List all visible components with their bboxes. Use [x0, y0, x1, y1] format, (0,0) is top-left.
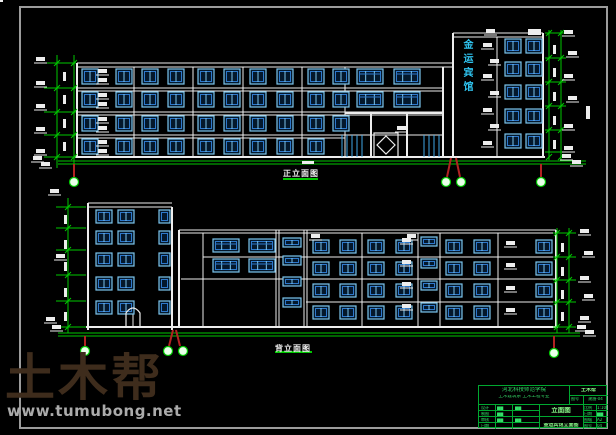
- window: [159, 301, 170, 314]
- level-mark-text: [98, 126, 107, 130]
- dim-text: [561, 243, 564, 252]
- tb-line: [569, 395, 608, 396]
- level-mark-text: [397, 126, 406, 130]
- level-mark-text: [490, 124, 499, 128]
- dim-text: [553, 92, 556, 101]
- level-mark-text: [584, 294, 593, 298]
- tb-drawing-name: 立面图: [540, 407, 582, 414]
- tb-row-value: ▆▆: [497, 418, 511, 422]
- dim-text: [64, 215, 67, 224]
- tb-brand: 土木帮: [570, 388, 607, 394]
- tb-department: 土木建筑系 土木工程专业: [481, 395, 567, 400]
- watermark-brand-text: 土木帮: [5, 353, 164, 403]
- level-mark-text: [490, 91, 499, 95]
- tb-school: 河北科技师范学院: [481, 387, 567, 393]
- level-mark-text: [402, 282, 411, 286]
- axis-bubble: [442, 178, 451, 187]
- dim-text: [553, 45, 556, 54]
- level-mark-text: [56, 254, 65, 258]
- tb-right-value: ▆▆: [597, 412, 607, 416]
- level-mark-text: [36, 81, 45, 85]
- axis-bubble: [164, 347, 173, 356]
- tb-right-label: 图号: [584, 424, 595, 428]
- level-mark-text: [580, 276, 589, 280]
- tb-row-value: ▆▆: [497, 406, 511, 410]
- level-mark-text: [46, 317, 55, 321]
- axis-bubble: [550, 349, 559, 358]
- tb-docno-value: 建施-04: [584, 397, 607, 401]
- dim-text: [64, 288, 67, 297]
- tb-right-label: 图幅: [584, 418, 595, 422]
- level-mark-text: [483, 108, 492, 112]
- tb-row-label: 制图: [481, 412, 494, 416]
- level-mark-text: [577, 325, 586, 329]
- level-mark-text: [564, 30, 573, 34]
- level-mark-text: [98, 140, 107, 144]
- tb-line: [495, 404, 496, 429]
- door-detail: [377, 136, 395, 154]
- cad-screenshot: 金运宾馆 正立面图 背立面图 河北科技师范学院 土木建筑系 土木工程专业 土木帮…: [0, 0, 616, 435]
- cad-line: [176, 330, 180, 346]
- tb-row-label: 审核: [481, 418, 494, 422]
- dim-text: [553, 140, 556, 149]
- level-mark-text: [483, 141, 492, 145]
- dim-text: [63, 119, 66, 128]
- level-mark-text: [407, 234, 416, 238]
- dim-text: [63, 142, 66, 151]
- level-mark-text: [490, 59, 499, 63]
- tb-right-value: A2: [597, 418, 607, 422]
- tb-docno-label: 图号: [571, 397, 583, 401]
- level-mark-text: [506, 286, 515, 290]
- window: [213, 259, 239, 272]
- axis-bubble: [457, 178, 466, 187]
- window: [159, 253, 170, 266]
- level-mark-text: [584, 251, 593, 255]
- dim-text: [302, 161, 314, 164]
- level-mark-text: [585, 330, 594, 334]
- tb-mid-cell: ▆▆: [515, 406, 537, 410]
- level-mark-text: [36, 149, 45, 153]
- level-mark-text: [564, 74, 573, 78]
- axis-bubble: [537, 178, 546, 187]
- dim-text: [553, 68, 556, 77]
- window: [249, 239, 275, 252]
- level-mark-text: [402, 260, 411, 264]
- level-mark-text: [572, 160, 581, 164]
- dim-text: [561, 290, 564, 299]
- level-mark-text: [580, 316, 589, 320]
- cad-line: [169, 330, 173, 346]
- level-mark-text: [483, 74, 492, 78]
- level-mark-text: [568, 51, 577, 55]
- level-mark-text: [311, 234, 320, 238]
- level-mark-text: [506, 241, 515, 245]
- level-mark-text: [98, 78, 107, 82]
- level-mark-text: [36, 57, 45, 61]
- title-block: 河北科技师范学院 土木建筑系 土木工程专业 土木帮 图号 建施-04 设计 制图…: [478, 385, 607, 428]
- watermark-url-text: www.tumubong.net: [7, 404, 182, 419]
- level-mark-text: [98, 69, 107, 73]
- level-mark-text: [50, 189, 59, 193]
- level-mark-text: [41, 162, 50, 166]
- window: [159, 231, 170, 244]
- dim-text: [63, 95, 66, 104]
- dim-text: [528, 29, 541, 35]
- level-mark-text: [33, 156, 42, 160]
- level-mark-text: [98, 149, 107, 153]
- level-mark-text: [402, 238, 411, 242]
- axis-bubble: [70, 178, 79, 187]
- dim-text: [561, 312, 564, 321]
- tb-right-label: 日期: [584, 412, 595, 416]
- tb-right-value: 04: [597, 424, 607, 428]
- level-mark-text: [568, 96, 577, 100]
- level-mark-text: [486, 29, 495, 33]
- level-mark-text: [564, 124, 573, 128]
- tb-mid-cell: ▆▆: [515, 418, 537, 422]
- front-elevation-caption: 正立面图: [281, 168, 321, 179]
- window: [159, 210, 170, 223]
- level-mark-text: [564, 146, 573, 150]
- dim-text: [586, 106, 590, 119]
- dim-text: [561, 267, 564, 276]
- level-mark-text: [506, 308, 515, 312]
- dim-text: [64, 262, 67, 271]
- tb-drawing-subtitle: 金运宾馆立面图: [540, 423, 582, 429]
- level-mark-text: [580, 229, 589, 233]
- tb-row-label: 设计: [481, 406, 494, 410]
- dim-text: [553, 116, 556, 125]
- level-mark-text: [98, 102, 107, 106]
- dim-text: [64, 240, 67, 249]
- dim-text: [63, 72, 66, 81]
- tb-row-label: 日期: [481, 424, 494, 428]
- level-mark-text: [36, 127, 45, 131]
- level-mark-text: [402, 304, 411, 308]
- dim-text: [64, 312, 67, 321]
- window: [249, 259, 275, 272]
- tb-right-label: 比例: [584, 406, 595, 410]
- window: [159, 277, 170, 290]
- level-mark-text: [36, 104, 45, 108]
- hotel-sign-text: 金运宾馆: [459, 39, 474, 95]
- tb-right-value: 1:100: [597, 406, 607, 410]
- rear-elevation-caption: 背立面图: [272, 343, 314, 354]
- level-mark-text: [98, 93, 107, 97]
- level-mark-text: [562, 154, 571, 158]
- level-mark-text: [483, 43, 492, 47]
- tb-line: [512, 404, 513, 429]
- axis-bubble: [179, 347, 188, 356]
- window: [213, 239, 239, 252]
- level-mark-text: [506, 263, 515, 267]
- tb-row-value: ▆▆: [497, 412, 511, 416]
- level-mark-text: [98, 117, 107, 121]
- level-mark-text: [52, 325, 61, 329]
